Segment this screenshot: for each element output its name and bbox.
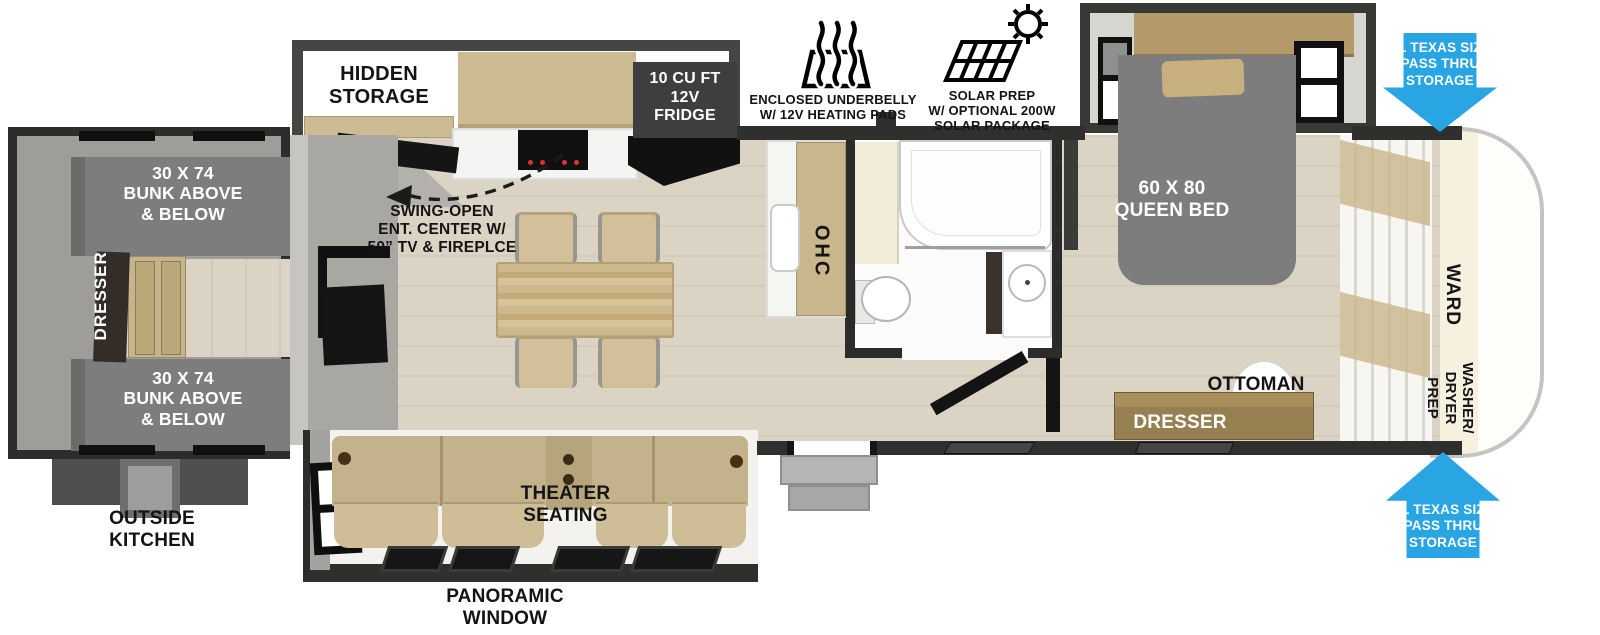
bunk-top-label: 30 X 74 BUNK ABOVE & BELOW (103, 163, 263, 224)
dining-table (496, 262, 674, 338)
toilet-bowl (861, 276, 911, 322)
panoramic-window-pane (630, 546, 722, 572)
window (193, 131, 265, 141)
dining-chair (598, 336, 660, 388)
window (193, 445, 265, 455)
solar-panel-sun-icon (938, 2, 1050, 90)
fridge-label: 10 CU FT 12V FRIDGE (633, 70, 737, 126)
enclosed-underbelly-label: ENCLOSED UNDERBELLY W/ 12V HEATING PADS (738, 92, 928, 122)
window (79, 445, 155, 455)
pass-thru-bottom-label: XL TEXAS SIZE PASS THRU STORAGE (1386, 502, 1500, 551)
cushion-divider (652, 436, 655, 506)
queen-bed-label: 60 X 80 QUEEN BED (1092, 178, 1252, 222)
cabinet-door (135, 261, 155, 355)
vanity-side (986, 252, 1002, 334)
shower-pan (911, 150, 1041, 236)
upper-cabinets (458, 52, 636, 128)
shower-door (905, 246, 1045, 249)
bathroom (845, 130, 1062, 358)
shower (899, 140, 1052, 250)
ohc-label: OHC (809, 197, 832, 307)
pass-thru-top-label: XL TEXAS SIZE PASS THRU STORAGE (1383, 40, 1497, 89)
island-sink (770, 204, 800, 272)
theater-seating-label: THEATER SEATING (503, 483, 628, 527)
heat-waves-icon (790, 4, 880, 92)
window (1135, 442, 1234, 454)
vanity (1002, 250, 1052, 338)
shelf (1340, 140, 1430, 226)
washer-dryer-prep-label: WASHER/ DRYER PREP (1424, 343, 1476, 453)
recliner-button (730, 455, 743, 468)
outside-kitchen-hatch (52, 459, 120, 505)
hatch-panel (128, 466, 172, 510)
pass-thru-arrow-down: XL TEXAS SIZE PASS THRU STORAGE (1383, 33, 1497, 132)
rv-floorplan: HIDDEN STORAGE 10 CU FT 12V FRIDGE SWING… (0, 0, 1600, 635)
bedroom-wall (1064, 135, 1078, 250)
bunk-bottom-label: 30 X 74 BUNK ABOVE & BELOW (103, 368, 263, 429)
window-pane (1301, 48, 1337, 78)
entry-door-opening (787, 441, 877, 455)
cupholder (563, 454, 574, 465)
bunk-dresser-label: DRESSER (91, 241, 111, 351)
window (944, 442, 1036, 454)
theater-seat (334, 502, 438, 548)
entry-steps (788, 485, 870, 511)
shelf (1340, 292, 1430, 378)
panoramic-window-pane (448, 546, 520, 572)
recliner-button (338, 452, 351, 465)
window-pane (1301, 85, 1337, 117)
outside-kitchen-label: OUTSIDE KITCHEN (92, 508, 212, 552)
tv-50in (320, 284, 388, 365)
pillow (1161, 59, 1244, 98)
ward-label: WARD (1441, 235, 1463, 355)
cushion-divider (440, 436, 443, 506)
dining-chair (598, 212, 660, 264)
hidden-storage-label: HIDDEN STORAGE (304, 63, 454, 109)
theater-seat (672, 502, 746, 548)
door-jamb (787, 441, 794, 455)
panoramic-window-pane (380, 546, 448, 572)
exterior-wall (1352, 126, 1462, 140)
pass-thru-arrow-up: XL TEXAS SIZE PASS THRU STORAGE (1386, 452, 1500, 558)
window (1294, 41, 1344, 123)
bedroom-dresser-label: DRESSER (1120, 412, 1240, 434)
solar-prep-label: SOLAR PREP W/ OPTIONAL 200W SOLAR PACKAG… (902, 88, 1082, 133)
wardrobe-shelves (1340, 135, 1432, 445)
entry-steps (780, 455, 878, 485)
outside-kitchen-hatch (180, 459, 248, 505)
window (79, 131, 155, 141)
door-jamb (870, 441, 877, 455)
faucet (1025, 280, 1030, 285)
door-frame (1046, 358, 1060, 432)
bunk-cabinet (128, 256, 186, 358)
panoramic-window-label: PANORAMIC WINDOW (430, 586, 580, 630)
ottoman-label: OTTOMAN (1196, 374, 1316, 396)
linen-cabinet (855, 142, 899, 264)
cabinet-door (161, 261, 181, 355)
dashed-curve-arrow-icon (378, 143, 578, 213)
panoramic-window-pane (550, 546, 630, 572)
dining-chair (515, 336, 577, 388)
